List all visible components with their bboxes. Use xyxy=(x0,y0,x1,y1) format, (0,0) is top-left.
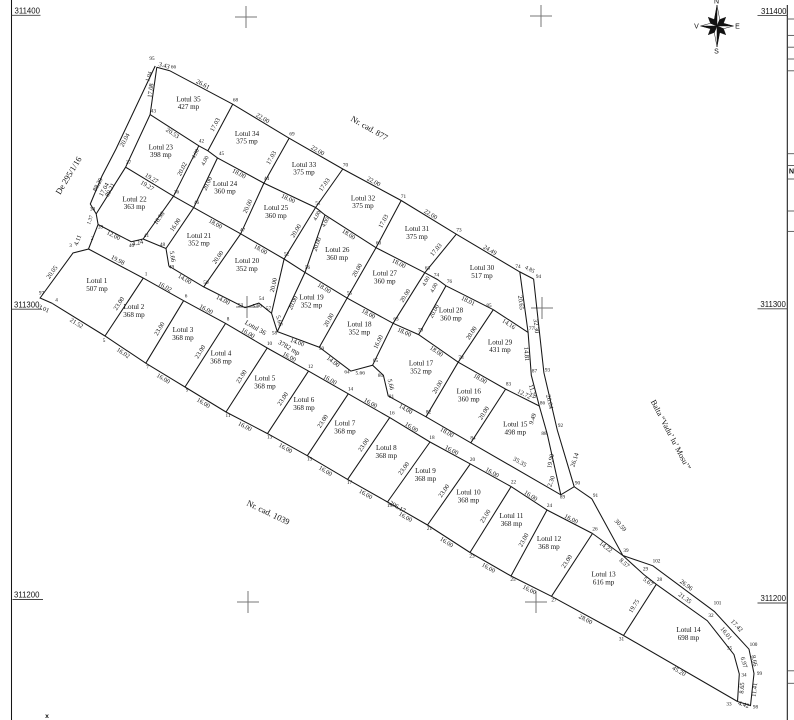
svg-text:360 mp: 360 mp xyxy=(265,212,287,220)
svg-text:59: 59 xyxy=(319,346,325,352)
svg-text:36: 36 xyxy=(174,190,180,196)
svg-text:368 mp: 368 mp xyxy=(210,357,232,365)
svg-text:368 mp: 368 mp xyxy=(123,311,145,319)
svg-text:427 mp: 427 mp xyxy=(178,103,200,111)
svg-text:5: 5 xyxy=(103,338,106,344)
svg-text:73: 73 xyxy=(456,228,462,234)
svg-text:57: 57 xyxy=(266,306,272,312)
svg-text:46: 46 xyxy=(194,200,200,206)
svg-text:698 mp: 698 mp xyxy=(678,634,700,642)
svg-text:517 mp: 517 mp xyxy=(471,272,493,280)
svg-text:V: V xyxy=(694,24,699,31)
svg-text:43: 43 xyxy=(151,109,157,115)
svg-text:64: 64 xyxy=(344,370,350,376)
svg-text:51: 51 xyxy=(315,201,321,207)
svg-text:34: 34 xyxy=(741,673,747,679)
svg-text:S: S xyxy=(714,49,719,56)
svg-text:35: 35 xyxy=(727,646,733,652)
svg-text:25: 25 xyxy=(510,577,516,583)
svg-text:375 mp: 375 mp xyxy=(293,169,315,177)
svg-text:2: 2 xyxy=(91,236,94,242)
svg-text:82: 82 xyxy=(426,410,432,416)
svg-text:56: 56 xyxy=(305,265,311,271)
svg-text:15: 15 xyxy=(307,457,313,463)
svg-text:x: x xyxy=(45,713,49,720)
svg-text:23: 23 xyxy=(469,554,475,560)
svg-text:79: 79 xyxy=(418,328,424,334)
svg-text:311300: 311300 xyxy=(14,301,40,310)
svg-text:311200: 311200 xyxy=(14,591,40,600)
svg-text:375 mp: 375 mp xyxy=(352,202,374,210)
svg-text:360 mp: 360 mp xyxy=(327,254,349,262)
svg-text:60: 60 xyxy=(376,241,382,247)
svg-text:368 mp: 368 mp xyxy=(458,496,480,504)
svg-text:99: 99 xyxy=(757,671,763,677)
svg-text:76: 76 xyxy=(447,279,453,285)
svg-text:12: 12 xyxy=(308,364,314,370)
svg-text:102: 102 xyxy=(653,559,661,565)
svg-text:65: 65 xyxy=(373,358,379,364)
svg-text:14.81: 14.81 xyxy=(522,347,530,362)
svg-text:360 mp: 360 mp xyxy=(440,314,462,322)
svg-text:375 mp: 375 mp xyxy=(236,138,258,146)
svg-text:352 mp: 352 mp xyxy=(349,328,371,336)
svg-text:94: 94 xyxy=(536,274,542,280)
svg-text:98: 98 xyxy=(753,705,759,711)
svg-text:84: 84 xyxy=(470,436,476,442)
svg-text:10: 10 xyxy=(267,341,273,347)
svg-text:431 mp: 431 mp xyxy=(489,346,511,354)
svg-text:70: 70 xyxy=(343,163,349,169)
svg-text:63: 63 xyxy=(425,266,431,272)
svg-text:42: 42 xyxy=(199,139,205,145)
svg-text:74: 74 xyxy=(515,264,521,270)
svg-text:45: 45 xyxy=(219,151,225,157)
svg-text:8: 8 xyxy=(227,317,230,323)
svg-text:74: 74 xyxy=(434,273,440,279)
svg-text:21: 21 xyxy=(427,526,433,532)
svg-text:352 mp: 352 mp xyxy=(236,265,258,273)
svg-text:52: 52 xyxy=(284,252,290,258)
svg-text:368 mp: 368 mp xyxy=(293,404,315,412)
svg-text:311300: 311300 xyxy=(760,300,786,309)
svg-text:95: 95 xyxy=(149,56,155,62)
svg-text:360 mp: 360 mp xyxy=(374,277,396,285)
svg-text:16: 16 xyxy=(389,411,395,417)
svg-text:368 mp: 368 mp xyxy=(172,334,194,342)
svg-text:90: 90 xyxy=(575,481,581,487)
svg-text:1: 1 xyxy=(145,272,148,278)
svg-text:97: 97 xyxy=(39,291,45,297)
svg-text:22: 22 xyxy=(511,480,517,486)
svg-text:11: 11 xyxy=(226,413,231,419)
svg-text:4: 4 xyxy=(55,298,58,304)
svg-text:N: N xyxy=(789,167,794,176)
svg-text:32: 32 xyxy=(708,613,714,619)
svg-text:6: 6 xyxy=(185,294,188,300)
svg-text:89: 89 xyxy=(560,495,566,501)
svg-text:616 mp: 616 mp xyxy=(593,578,615,586)
svg-text:20: 20 xyxy=(470,457,476,463)
svg-text:71: 71 xyxy=(401,194,407,200)
svg-text:5.66: 5.66 xyxy=(253,304,263,310)
svg-text:48: 48 xyxy=(160,242,166,248)
svg-text:14: 14 xyxy=(348,387,354,393)
svg-text:352 mp: 352 mp xyxy=(301,301,323,309)
svg-text:66: 66 xyxy=(171,65,177,71)
svg-text:85: 85 xyxy=(486,303,492,309)
svg-text:27: 27 xyxy=(551,598,557,604)
svg-text:58: 58 xyxy=(272,331,278,337)
svg-text:18: 18 xyxy=(429,435,435,441)
svg-text:368 mp: 368 mp xyxy=(334,427,356,435)
svg-text:311400: 311400 xyxy=(761,7,787,16)
svg-text:33: 33 xyxy=(726,702,732,708)
svg-text:49: 49 xyxy=(169,265,175,271)
svg-text:63: 63 xyxy=(393,317,399,323)
svg-text:91: 91 xyxy=(593,493,599,499)
svg-text:47: 47 xyxy=(240,228,246,234)
svg-text:24: 24 xyxy=(547,503,553,509)
svg-text:360 mp: 360 mp xyxy=(214,188,236,196)
svg-text:19: 19 xyxy=(387,503,393,509)
svg-text:498 mp: 498 mp xyxy=(505,428,527,436)
svg-text:7: 7 xyxy=(146,365,149,371)
svg-text:81: 81 xyxy=(389,394,395,400)
svg-text:398 mp: 398 mp xyxy=(150,151,172,159)
svg-text:26: 26 xyxy=(592,527,598,533)
svg-text:54: 54 xyxy=(259,296,265,302)
svg-text:100: 100 xyxy=(750,642,758,648)
svg-text:9: 9 xyxy=(186,388,189,394)
svg-text:78: 78 xyxy=(458,355,464,361)
svg-text:17: 17 xyxy=(347,480,353,486)
svg-text:38: 38 xyxy=(90,207,96,213)
svg-text:80: 80 xyxy=(378,373,384,379)
svg-text:87: 87 xyxy=(532,369,538,375)
svg-text:360 mp: 360 mp xyxy=(458,395,480,403)
svg-text:368 mp: 368 mp xyxy=(415,475,437,483)
svg-text:363 mp: 363 mp xyxy=(124,203,146,211)
svg-text:368 mp: 368 mp xyxy=(501,520,523,528)
svg-text:29: 29 xyxy=(643,567,649,573)
svg-text:5.66: 5.66 xyxy=(356,371,366,377)
svg-text:40: 40 xyxy=(129,243,135,249)
svg-text:44: 44 xyxy=(264,176,270,182)
svg-text:8.65: 8.65 xyxy=(739,682,747,694)
svg-text:55: 55 xyxy=(347,291,353,297)
svg-text:368 mp: 368 mp xyxy=(254,382,276,390)
svg-text:93: 93 xyxy=(545,368,551,374)
svg-text:31: 31 xyxy=(619,637,625,643)
svg-text:E: E xyxy=(735,24,740,31)
svg-text:3: 3 xyxy=(69,243,72,249)
svg-text:352 mp: 352 mp xyxy=(410,367,432,375)
svg-text:375 mp: 375 mp xyxy=(406,233,428,241)
svg-text:311400: 311400 xyxy=(15,7,41,16)
svg-text:83: 83 xyxy=(506,382,512,388)
svg-text:77: 77 xyxy=(529,326,535,332)
svg-text:39: 39 xyxy=(623,548,629,554)
svg-text:101: 101 xyxy=(714,601,722,607)
svg-text:13: 13 xyxy=(267,435,273,441)
svg-text:39: 39 xyxy=(98,225,104,231)
svg-text:86: 86 xyxy=(540,401,546,407)
svg-text:368 mp: 368 mp xyxy=(376,452,398,460)
svg-text:368 mp: 368 mp xyxy=(538,543,560,551)
svg-text:507 mp: 507 mp xyxy=(86,285,108,293)
svg-text:37: 37 xyxy=(126,160,132,166)
svg-text:41: 41 xyxy=(144,233,150,239)
svg-text:352 mp: 352 mp xyxy=(188,240,210,248)
svg-text:92: 92 xyxy=(558,423,564,429)
svg-text:311200: 311200 xyxy=(761,594,787,603)
svg-text:69: 69 xyxy=(289,132,295,138)
svg-text:50: 50 xyxy=(203,280,209,286)
svg-text:53: 53 xyxy=(238,303,244,309)
svg-text:68: 68 xyxy=(233,98,239,104)
svg-text:N: N xyxy=(714,0,719,6)
svg-text:88: 88 xyxy=(541,431,547,437)
svg-text:28: 28 xyxy=(657,577,663,583)
